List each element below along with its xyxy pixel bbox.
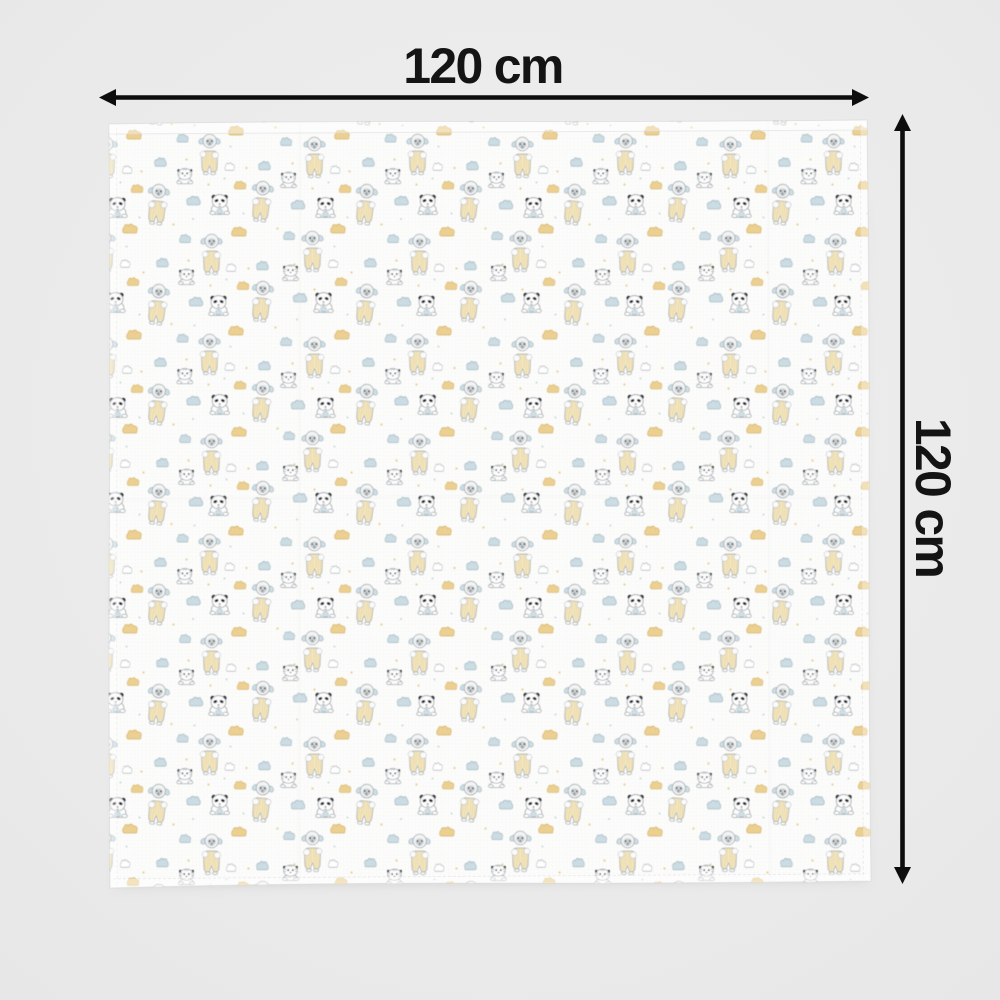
svg-text:120 cm: 120 cm xyxy=(403,38,562,94)
svg-text:120 cm: 120 cm xyxy=(905,418,961,577)
